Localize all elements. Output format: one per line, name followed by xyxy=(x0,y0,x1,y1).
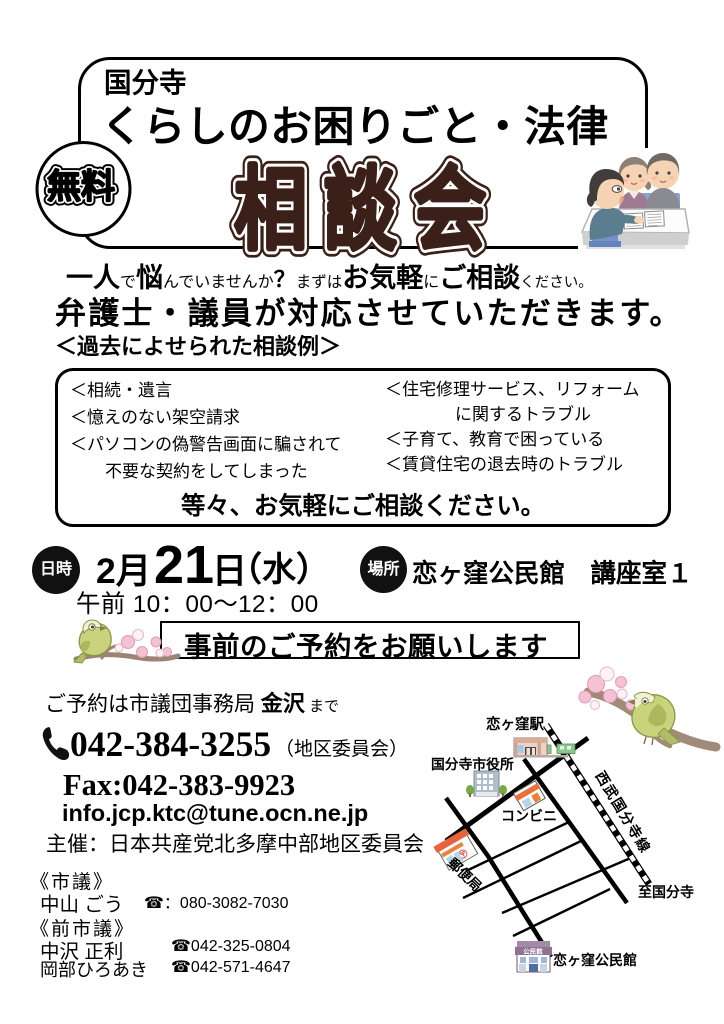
svg-text:公民館: 公民館 xyxy=(523,947,543,956)
svg-text:コンビニ: コンビニ xyxy=(501,808,557,824)
svg-text:至国分寺: 至国分寺 xyxy=(638,884,694,900)
svg-text:無料: 無料 xyxy=(47,168,115,206)
svg-text:国分寺市役所: 国分寺市役所 xyxy=(431,756,514,772)
svg-text:恋ヶ窪公民館: 恋ヶ窪公民館 xyxy=(553,952,637,968)
svg-text:相談会: 相談会 xyxy=(234,159,503,260)
svg-text:恋ヶ窪駅: 恋ヶ窪駅 xyxy=(486,715,544,733)
